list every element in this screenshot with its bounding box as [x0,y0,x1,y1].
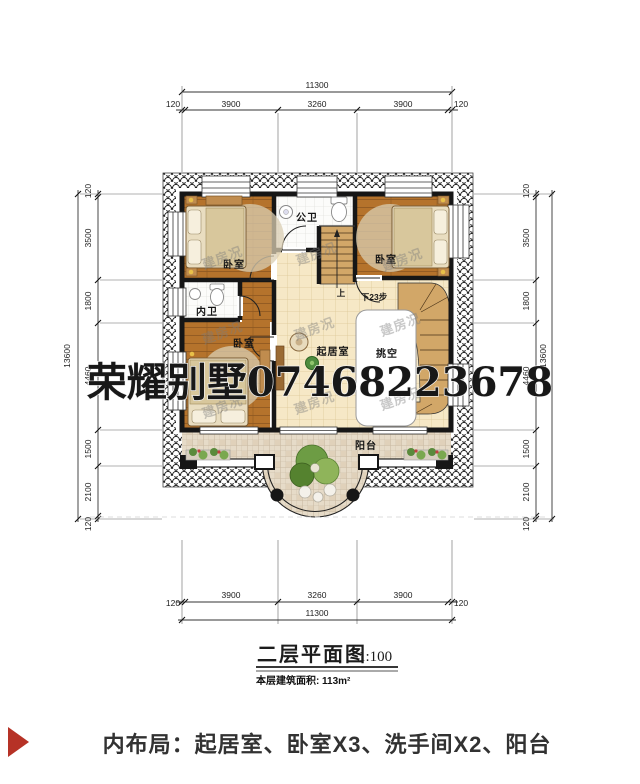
dim-left-total: 13600 [62,344,72,368]
label-living: 起居室 [316,345,350,358]
dim-left-seg1: 3500 [83,228,93,247]
window-top-1 [202,176,250,197]
balcony-arc-pier-left [271,489,284,502]
footer-bar: 内布局：起居室、卧室X3、洗手间X2、阳台 [8,727,551,757]
drawing-scale: 1:100 [358,649,392,665]
floor-plan-page: 11300 120 3900 3260 3900 120 13600 120 3… [0,0,640,784]
footer-layout-text: 内布局：起居室、卧室X3、洗手间X2、阳台 [103,732,552,757]
drawing-title: 二层平面图 [257,643,367,666]
floor-area-label: 本层建筑面积: [256,674,319,687]
title-block: 二层平面图 1:100 本层建筑面积: 113m² [256,643,398,687]
dim-right-seg4: 1500 [521,439,531,458]
dim-top-seg1: 3900 [222,99,241,109]
door-balcony-2 [280,427,337,434]
dim-right-seg2: 1800 [521,291,531,310]
plan-body: 卧室 卧室 卧室 公卫 内卫 起居室 挑空 阳台 上 下23步 建房况 建房况 … [87,173,553,517]
dim-bottom-side1: 120 [454,598,468,608]
dim-left-seg4: 1500 [83,439,93,458]
balcony-pier-mid-left [255,455,274,469]
label-bedroom-bottom-left: 卧室 [233,337,255,350]
balcony-planter-left [186,448,230,460]
window-top-2 [297,176,337,197]
label-bath-inner: 内卫 [196,305,218,318]
window-left-2 [168,288,186,316]
dim-top-total: 11300 [305,80,328,90]
dim-bottom-seg0: 3900 [222,590,241,600]
dimension-left: 13600 120 3500 1800 4460 1500 2100 120 [62,184,162,531]
dim-top-seg0: 120 [166,99,180,109]
dim-bottom-seg2: 3900 [394,590,413,600]
dim-top-seg2: 3260 [308,99,327,109]
dim-bottom-seg1: 3260 [308,590,327,600]
dim-left-seg5: 2100 [83,482,93,501]
door-balcony-1 [200,427,258,434]
footer-bullet-icon [8,727,29,757]
window-right-1 [448,205,469,258]
dim-bottom-side0: 120 [166,598,180,608]
label-balcony: 阳台 [355,439,377,452]
floor-plan-drawing: 11300 120 3900 3260 3900 120 13600 120 3… [0,0,640,784]
dresser-top-left [206,196,242,205]
door-balcony-3 [373,427,427,434]
bedroom-corridor-floor [242,282,272,322]
label-stair-up: 上 [337,288,346,298]
balcony-planter-right [404,448,448,460]
floor-area-value: 113m² [322,676,351,687]
dim-bottom-total: 11300 [305,608,328,618]
label-bath-public: 公卫 [296,212,318,224]
dim-left-seg0: 120 [83,184,93,198]
dimension-top: 11300 120 3900 3260 3900 120 [166,80,468,172]
dimension-right: 120 3500 1800 4460 1500 2100 120 13600 [474,184,555,531]
balcony-pier-mid-right [359,455,378,469]
dim-right-seg0: 120 [521,184,531,198]
dim-right-seg1: 3500 [521,228,531,247]
dimension-bottom: 3900 3260 3900 120 120 11300 [166,540,468,624]
brand-watermark: 荣耀别墅07468223678 [87,359,553,406]
label-stair-down: 下23步 [361,292,388,302]
balcony-arc-pier-right [347,489,360,502]
dim-left-seg2: 1800 [83,291,93,310]
dim-top-seg4: 120 [454,99,468,109]
dim-right-seg5: 2100 [521,482,531,501]
window-top-3 [385,176,432,197]
window-left-1 [168,212,186,256]
dim-top-seg3: 3900 [394,99,413,109]
